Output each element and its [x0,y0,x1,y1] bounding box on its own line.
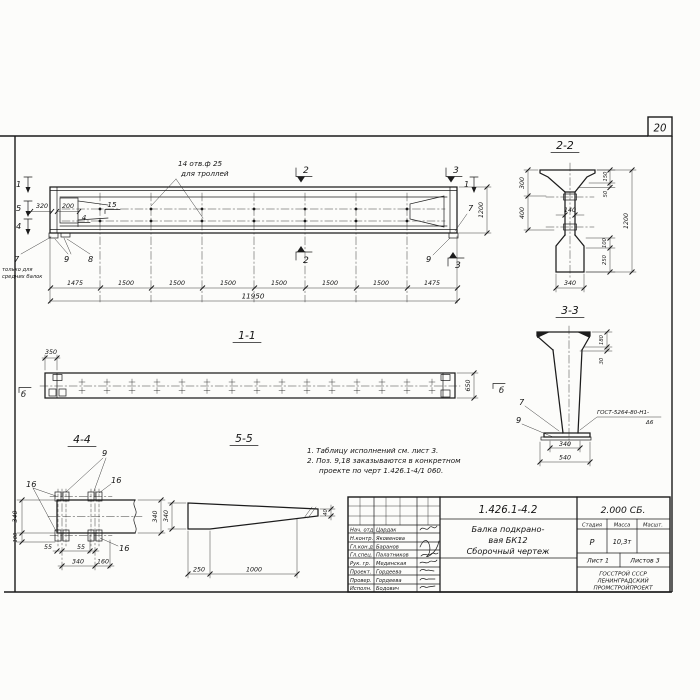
view-1-1-dim-650: 650 [457,371,478,401]
svg-text:1500: 1500 [271,280,287,287]
weld-size: Δ6 [645,420,654,426]
section-3-3-pos-9: 9 [516,415,553,437]
view-4-4-title: 4-4 [73,433,91,446]
view-4-4-pos-16-right: 16 [99,475,121,493]
mass-value: 10,3т [613,538,632,546]
view-5-5-bottom-dims: 250 1000 [186,519,300,578]
org-line-3: ПРОМСТРОЙПРОЕКТ [594,585,654,592]
svg-text:Яковенова: Яковенова [375,536,405,542]
section-2-2-web-dim: 140 [556,207,584,218]
sheet-number: 20 [654,124,667,135]
svg-text:340: 340 [564,280,576,287]
pos-7-right: 7 [455,203,474,231]
svg-text:1500: 1500 [118,280,134,287]
view-4-4-pos-16-left: 16 [26,479,56,531]
svg-text:Н.контр.: Н.контр. [350,536,373,542]
svg-text:1475: 1475 [424,280,440,287]
section-3-3-pos-7: 7 [519,397,559,431]
pos-7-note-1: только для [2,267,33,273]
svg-text:150: 150 [603,171,609,182]
col-scale: Масшт. [643,523,663,529]
view-5-5-right-dim: 40 [320,505,335,520]
svg-text:7: 7 [519,397,525,407]
view-5-5-title: 5-5 [235,432,253,445]
svg-text:7: 7 [468,203,474,213]
view-mark-1-left: 1 [16,177,32,193]
pos-9-right: 9 [426,238,450,264]
section-2-2-title: 2-2 [556,139,574,152]
col-stage: Стадия [582,523,602,529]
blueprint-svg: 20 14 отв.ф 25 для трол [0,0,700,700]
view-4-4-bottom-dims: 55 55 340 160 [44,535,114,569]
notes: 1. Таблицу исполнений см. лист 3. 2. Поз… [307,446,461,475]
svg-text:9: 9 [426,254,431,264]
view-mark-1-right: 1 [464,177,478,193]
view-1-1: 1-1 350 б б 65 [19,329,505,401]
svg-text:1500: 1500 [322,280,338,287]
view-4-4-left-dims: 340 100 [12,498,55,545]
org-line-2: ЛЕНИНГРАДСКИЙ [596,578,649,585]
svg-text:1: 1 [16,179,21,189]
svg-text:16: 16 [119,543,129,553]
svg-text:1500: 1500 [169,280,185,287]
svg-text:15: 15 [107,200,117,209]
svg-text:340: 340 [163,510,170,522]
note-line-2: 2. Поз. 9,18 заказываются в конкретном [307,456,461,465]
svg-text:4: 4 [82,213,87,222]
svg-text:7: 7 [14,254,20,264]
svg-text:350: 350 [45,349,57,356]
svg-text:8: 8 [88,254,93,264]
bearing-pad-right [449,233,458,238]
svg-text:Баранов: Баранов [376,545,399,551]
sheets-label: Листов 3 [629,558,660,565]
section-2-2-right-dims: 150 50 100 250 1200 [578,168,636,275]
pos-9-left: 9 [55,238,71,264]
svg-text:340: 340 [12,510,19,522]
svg-text:Гордеева: Гордеева [376,578,402,584]
svg-text:100: 100 [13,532,19,543]
drawing-name-1: Балка подкрано- [472,524,545,534]
view-4-4: 4-4 9 16 16 [12,433,165,570]
signature-rows: Нач. отдЦардак Н.контр.Яковенова Гл.кон.… [350,526,439,592]
section-mark-3-bottom: 3 [448,252,464,271]
weld-gost: ГОСТ-5264-80-Н1- [597,410,649,416]
drawing-name-3: Сборочный чертеж [467,546,550,556]
svg-text:Гл.спец.: Гл.спец. [350,553,372,559]
svg-text:1: 1 [464,179,469,189]
svg-text:1475: 1475 [67,280,83,287]
stage-value: Р [590,537,595,547]
drawing-frame: 20 [0,117,672,592]
section-mark-3-top: 3 [446,165,462,183]
svg-text:40: 40 [323,509,329,516]
svg-text:1200: 1200 [623,213,630,229]
view-mark-5-left: 5 [16,201,32,217]
svg-text:Нач. отд: Нач. отд [350,528,374,534]
svg-text:100: 100 [602,237,608,248]
svg-text:250: 250 [193,567,205,574]
dim-total-length: 11950 [242,292,265,301]
section-3-3-bottom-dims: 340 540 [538,441,593,466]
svg-text:16: 16 [111,475,121,485]
section-mark-2-top: 2 [296,165,312,183]
view-1-1-mark-b-right: б [493,384,505,396]
elevation-view: 14 отв.ф 25 для троллей 320 200 15 4 7 т… [2,159,491,304]
svg-text:340: 340 [72,559,84,566]
svg-text:1500: 1500 [373,280,389,287]
svg-text:Мединская: Мединская [376,561,406,567]
view-4-4-pos-16-bottom: 16 [100,538,129,553]
doc-number: 1.426.1-4.2 [479,505,538,516]
dim-320: 320 [36,203,48,210]
org-line-1: ГОССТРОЙ СССР [599,571,647,578]
pos-15: 15 [105,200,120,214]
drawing-sheet: 20 14 отв.ф 25 для трол [0,0,700,700]
trolley-holes [99,208,409,223]
svg-text:50: 50 [603,190,609,197]
svg-text:650: 650 [465,379,472,391]
svg-text:55: 55 [44,544,52,551]
svg-text:30: 30 [599,357,605,364]
doc-code: 2.000 СБ. [601,505,646,516]
svg-text:5: 5 [16,203,21,213]
svg-text:540: 540 [559,455,571,462]
view-1-1-title: 1-1 [238,329,256,342]
svg-text:б: б [21,389,26,399]
svg-text:340: 340 [152,510,159,522]
svg-text:Палатников: Палатников [376,553,409,559]
section-3-3: 3-3 180 30 7 9 ГОСТ-5264- [516,304,661,466]
svg-text:2: 2 [303,165,309,176]
note-line-3: проекте по черт 1.426.1-4/1 060. [319,466,443,475]
svg-text:Бодович: Бодович [376,586,399,592]
pos-8: 8 [67,239,93,264]
view-1-1-dim-350: 350 [42,349,60,370]
svg-text:3: 3 [453,165,459,176]
svg-text:140: 140 [564,207,576,214]
col-mass: Масса [614,523,631,529]
view-1-1-mark-b-left: б [19,388,31,400]
section-mark-2-bottom: 2 [296,246,312,266]
svg-text:Гордеева: Гордеева [376,570,402,576]
svg-text:Рук. гр.: Рук. гр. [350,561,370,567]
section-3-3-title: 3-3 [561,304,579,317]
drawing-name-2: вая БК12 [488,535,527,545]
sheet-label: Лист 1 [586,558,609,565]
view-4-4-pos-9: 9 [66,448,107,492]
pos-7-left: 7 только для средних балок [2,237,51,280]
svg-text:б: б [499,385,504,395]
svg-text:1000: 1000 [246,567,262,574]
svg-text:300: 300 [519,177,526,189]
svg-text:160: 160 [97,559,109,566]
svg-text:Гл.кон.д: Гл.кон.д [350,545,373,551]
callout-text-1: 14 отв.ф 25 [178,159,223,168]
svg-text:Провер.: Провер. [350,578,372,584]
svg-text:1200: 1200 [478,202,485,218]
elevation-height-dim: 1200 [459,185,491,236]
svg-text:Проект.: Проект. [350,570,371,576]
svg-text:1500: 1500 [220,280,236,287]
pos-7-note-2: средних балок [2,274,43,280]
svg-text:9: 9 [516,415,521,425]
svg-text:55: 55 [77,544,85,551]
weld-note: ГОСТ-5264-80-Н1- Δ6 [580,410,661,430]
svg-text:4: 4 [16,221,21,231]
svg-text:16: 16 [26,479,36,489]
svg-text:9: 9 [64,254,69,264]
svg-text:250: 250 [602,254,608,265]
dim-200: 200 [62,203,74,210]
svg-text:340: 340 [559,441,571,448]
svg-text:180: 180 [599,334,605,345]
title-block: 1.426.1-4.2 2.000 СБ. Балка подкрано- ва… [348,497,670,592]
svg-text:2: 2 [303,255,309,266]
svg-text:3: 3 [455,260,461,271]
view-mark-4-left: 4 [16,219,32,235]
note-line-1: 1. Таблицу исполнений см. лист 3. [307,446,438,455]
svg-text:Исполн.: Исполн. [350,586,372,592]
section-2-2: 2-2 300 400 140 150 50 [519,139,636,292]
callout-text-2: для троллей [180,169,229,178]
svg-text:Цардак: Цардак [376,528,397,534]
svg-text:9: 9 [102,448,107,458]
svg-text:400: 400 [519,207,526,219]
view-5-5-left-dim: 340 [163,501,186,532]
